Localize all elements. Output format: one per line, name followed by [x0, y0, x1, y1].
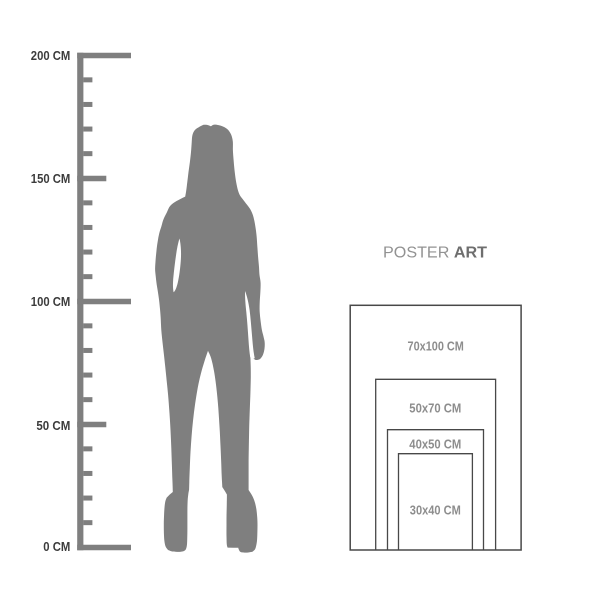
- svg-text:150 CM: 150 CM: [31, 171, 71, 186]
- svg-text:70x100 CM: 70x100 CM: [408, 340, 464, 354]
- svg-text:100 CM: 100 CM: [31, 294, 71, 309]
- svg-text:40x50 CM: 40x50 CM: [409, 438, 461, 452]
- svg-text:200 CM: 200 CM: [31, 48, 71, 63]
- svg-text:50x70 CM: 50x70 CM: [409, 402, 461, 416]
- svg-text:0 CM: 0 CM: [43, 539, 70, 554]
- svg-text:50 CM: 50 CM: [36, 418, 70, 433]
- svg-text:POSTER ART: POSTER ART: [383, 244, 487, 261]
- svg-text:30x40 CM: 30x40 CM: [410, 503, 461, 517]
